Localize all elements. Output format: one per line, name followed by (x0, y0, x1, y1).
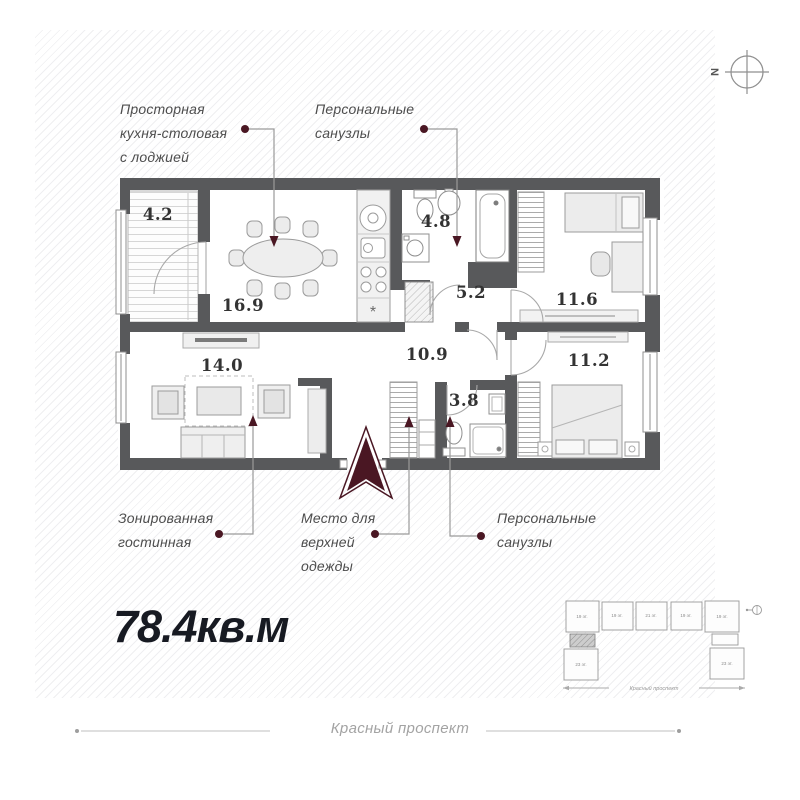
site-plan-compass-icon (746, 606, 762, 615)
kitchen-counter: * (357, 190, 390, 322)
callout-living-line1: Зонированная (118, 506, 213, 530)
callout-living: Зонированная гостинная (118, 506, 213, 554)
svg-text:23 эт.: 23 эт. (575, 662, 586, 667)
area-label-bathroom-bottom: 3.8 (449, 391, 479, 410)
area-label-bedroom-top: 11.6 (556, 290, 598, 309)
svg-text:19 эт.: 19 эт. (611, 613, 622, 618)
bathtub (476, 190, 509, 262)
vent-shaft (405, 282, 433, 322)
compass-icon: N (708, 50, 769, 94)
total-area-title: 78.4кв.м (113, 601, 288, 653)
callout-wardrobe: Место для верхней одежды (301, 506, 375, 578)
area-label-hallway: 10.9 (406, 345, 448, 364)
callout-dot-bathrooms-top (420, 125, 428, 133)
site-plan: 19 эт. 19 эт. 21 эт. 19 эт. 19 эт. 23 эт… (563, 601, 762, 692)
callout-bathrooms-bottom: Персональные санузлы (497, 506, 596, 554)
area-label-loggia: 4.2 (143, 205, 173, 224)
svg-text:*: * (370, 304, 376, 321)
site-plan-street-label: Красный проспект (630, 685, 679, 692)
callout-kitchen-line3: с лоджией (120, 145, 227, 169)
callout-bathrooms-top-line1: Персональные (315, 97, 414, 121)
svg-text:23 эт.: 23 эт. (721, 661, 732, 666)
svg-text:21 эт.: 21 эт. (645, 613, 656, 618)
svg-text:19 эт.: 19 эт. (576, 614, 587, 619)
site-plan-street-dimension: Красный проспект (563, 685, 745, 692)
callout-dot-living (215, 530, 223, 538)
area-label-living: 14.0 (201, 356, 243, 375)
callout-wardrobe-line3: одежды (301, 554, 375, 578)
callout-bathrooms-bottom-line2: санузлы (497, 530, 596, 554)
callout-dot-kitchen (241, 125, 249, 133)
callout-wardrobe-line1: Место для (301, 506, 375, 530)
street-label: Красный проспект (0, 720, 800, 737)
compass-north-label: N (708, 68, 720, 76)
callout-bathrooms-top: Персональные санузлы (315, 97, 414, 145)
site-plan-highlighted-section (570, 634, 595, 647)
area-label-kitchen: 16.9 (222, 296, 264, 315)
callout-wardrobe-line2: верхней (301, 530, 375, 554)
svg-text:19 эт.: 19 эт. (680, 613, 691, 618)
callout-living-line2: гостинная (118, 530, 213, 554)
callout-dot-bathrooms-bottom (477, 532, 485, 540)
area-label-bedroom-bottom: 11.2 (568, 351, 610, 370)
area-label-hall: 5.2 (456, 283, 486, 302)
callout-kitchen: Просторная кухня-столовая с лоджией (120, 97, 227, 169)
area-label-bathroom-top: 4.8 (421, 212, 451, 231)
callout-kitchen-line1: Просторная (120, 97, 227, 121)
callout-kitchen-line2: кухня-столовая (120, 121, 227, 145)
svg-text:19 эт.: 19 эт. (716, 614, 727, 619)
callout-bathrooms-bottom-line1: Персональные (497, 506, 596, 530)
callout-bathrooms-top-line2: санузлы (315, 121, 414, 145)
